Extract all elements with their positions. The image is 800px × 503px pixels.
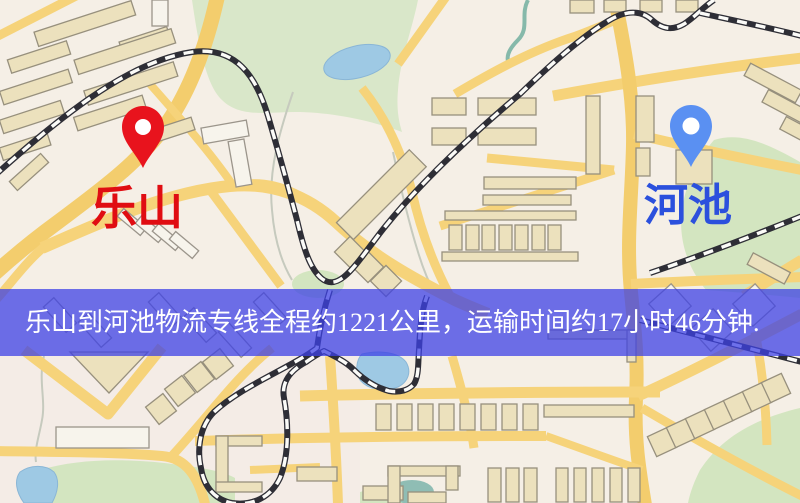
- pond-bottom-left: [17, 466, 58, 503]
- pond-center: [357, 352, 409, 390]
- route-info-banner: 乐山到河池物流专线全程约1221公里，运输时间约17小时46分钟.: [0, 289, 800, 356]
- destination-city-label: 河池: [644, 181, 732, 230]
- origin-pin-hole: [135, 119, 151, 135]
- destination-pin-hole: [683, 118, 700, 135]
- map-canvas[interactable]: 乐山 河池: [0, 0, 800, 503]
- map-screenshot: 乐山 河池 乐山到河池物流专线全程约1221公里，运输时间约17小时46分钟.: [0, 0, 800, 503]
- route-info-text: 乐山到河池物流专线全程约1221公里，运输时间约17小时46分钟.: [0, 289, 800, 356]
- origin-city-label: 乐山: [91, 183, 183, 234]
